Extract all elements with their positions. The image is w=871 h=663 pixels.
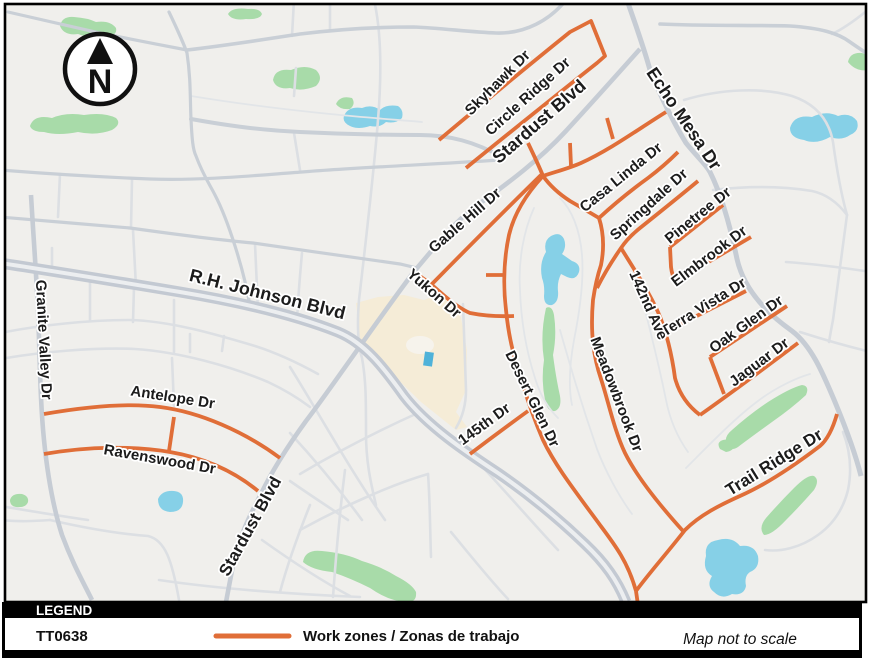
svg-text:Map not to scale: Map not to scale xyxy=(683,631,797,648)
svg-text:Work zones / Zonas de trabajo: Work zones / Zonas de trabajo xyxy=(303,628,519,645)
svg-text:N: N xyxy=(88,63,113,101)
svg-text:LEGEND: LEGEND xyxy=(36,603,93,618)
svg-text:TT0638: TT0638 xyxy=(36,628,88,645)
